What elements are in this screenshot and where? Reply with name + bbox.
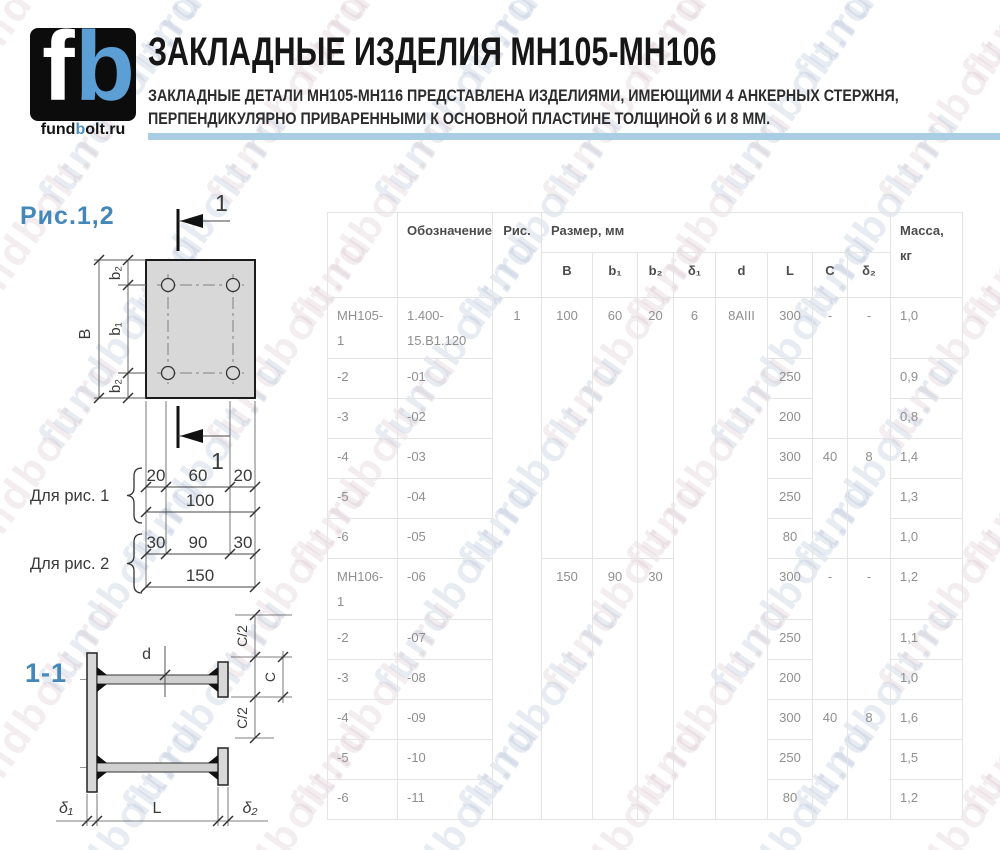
cell-designation: -05 <box>398 519 493 559</box>
table-row: МН105-1 1.400-15.В1.120 1 100 60 20 6 8А… <box>328 298 963 359</box>
width-dimensions: 20 60 20 100 30 90 30 150 Для рис. 1 Для… <box>30 401 260 593</box>
col-header-b2: b₂ <box>638 253 674 298</box>
col-header-size-group: Размер, мм <box>542 213 891 253</box>
domain-prefix: fund <box>41 121 76 138</box>
cell-b1: 60 <box>593 298 638 559</box>
cell-L: 200 <box>768 660 813 700</box>
logo-domain-label: fundbolt.ru <box>22 121 144 139</box>
cell-L: 80 <box>768 780 813 820</box>
subtitle-line-2: ПЕРПЕНДИКУЛЯРНО ПРИВАРЕННЫМИ К ОСНОВНОЙ … <box>148 107 899 130</box>
cell-mass: 1,6 <box>891 700 963 740</box>
cell-L: 300 <box>768 439 813 479</box>
dim-label-c-half-top: C/2 <box>234 625 250 647</box>
anchor-rod-top <box>97 675 218 684</box>
cell-C: - <box>813 559 848 700</box>
dim-label-c-half-bottom: C/2 <box>234 707 250 729</box>
cell-designation: -02 <box>398 399 493 439</box>
cell-name: -4 <box>328 700 398 740</box>
dim-20-left: 20 <box>147 466 166 485</box>
cell-designation: -06 <box>398 559 493 620</box>
for-fig2-label: Для рис. 2 <box>30 555 109 573</box>
dim-label-b2-top: b₂ <box>107 266 124 280</box>
cell-mass: 1,3 <box>891 479 963 519</box>
cell-delta2: - <box>848 298 891 439</box>
cell-designation: -09 <box>398 700 493 740</box>
table-row: МН106-1 -06 150 90 30 300 - - 1,2 <box>328 559 963 620</box>
brace-fig2 <box>127 534 142 593</box>
dim-20-right: 20 <box>234 466 253 485</box>
cell-mass: 1,2 <box>891 559 963 620</box>
domain-suffix: olt.ru <box>85 121 125 138</box>
rod-center-lines <box>80 680 226 768</box>
cell-L: 250 <box>768 620 813 660</box>
cell-b2: 30 <box>638 559 674 820</box>
page-title: ЗАКЛАДНЫЕ ИЗДЕЛИЯ МН105-МН106 <box>148 30 716 75</box>
cell-L: 300 <box>768 298 813 359</box>
section-cut-bottom-marker: 1 <box>178 406 230 474</box>
figure-caption: Рис.1,2 <box>20 202 115 230</box>
spec-table: Обозначение Рис. Размер, мм Масса, кг B … <box>327 212 963 820</box>
cell-designation: -04 <box>398 479 493 519</box>
dim-100: 100 <box>186 491 214 510</box>
subtitle-line-1: ЗАКЛАДНЫЕ ДЕТАЛИ МН105-МН116 ПРЕДСТАВЛЕН… <box>148 84 899 107</box>
cell-delta2: 8 <box>848 700 891 820</box>
cell-mass: 1,0 <box>891 519 963 559</box>
cell-C: 40 <box>813 700 848 820</box>
col-header-delta2: δ₂ <box>848 253 891 298</box>
cell-L: 300 <box>768 559 813 620</box>
cell-delta2: - <box>848 559 891 700</box>
cell-name: -6 <box>328 519 398 559</box>
cell-name: -3 <box>328 399 398 439</box>
logo-letter-f: f <box>42 28 75 115</box>
dim-150: 150 <box>186 566 214 585</box>
base-plate-top-view <box>146 260 255 398</box>
cut-mark-bottom: 1 <box>211 448 224 474</box>
cell-name: МН105-1 <box>328 298 398 359</box>
cell-name: -5 <box>328 740 398 780</box>
col-header-C: C <box>813 253 848 298</box>
cell-d: 8АIII <box>716 298 768 820</box>
cell-name: -5 <box>328 479 398 519</box>
cell-designation: -07 <box>398 620 493 660</box>
col-header-mass: Масса, кг <box>891 213 963 298</box>
cell-mass: 1,0 <box>891 660 963 700</box>
technical-drawing: Рис.1,2 1 <box>10 185 320 845</box>
section-view-body: d <box>80 646 228 792</box>
dim-label-delta2: δ₂ <box>243 800 258 817</box>
fundbolt-logo: f b <box>30 28 136 121</box>
dimension-C: C/2 C C/2 <box>231 610 292 743</box>
dim-30-left: 30 <box>147 533 166 552</box>
end-plate-bottom <box>218 748 228 785</box>
cell-C: - <box>813 298 848 439</box>
col-header-B: B <box>542 253 593 298</box>
dim-label-c: C <box>262 672 278 682</box>
cell-designation: -08 <box>398 660 493 700</box>
dim-label-d: d <box>142 646 151 663</box>
col-header-delta1: δ₁ <box>674 253 716 298</box>
cell-mass: 1,1 <box>891 620 963 660</box>
cell-mass: 1,4 <box>891 439 963 479</box>
cell-C: 40 <box>813 439 848 559</box>
cell-fig: 1 <box>493 298 542 820</box>
cell-delta1: 6 <box>674 298 716 820</box>
section-cut-top-marker: 1 <box>178 190 230 251</box>
cell-L: 250 <box>768 359 813 399</box>
cell-name: -3 <box>328 660 398 700</box>
dimension-L-deltas: δ₁ L δ₂ <box>56 787 268 826</box>
cell-designation: -03 <box>398 439 493 479</box>
main-plate-section <box>87 653 97 792</box>
anchor-rod-bottom <box>97 763 218 772</box>
cell-designation: 1.400-15.В1.120 <box>398 298 493 359</box>
col-header-b1: b₁ <box>593 253 638 298</box>
cell-designation: -11 <box>398 780 493 820</box>
cell-B: 100 <box>542 298 593 559</box>
brace-fig1 <box>127 468 142 523</box>
section-caption: 1-1 <box>25 658 67 688</box>
domain-b: b <box>75 121 85 138</box>
cell-name: -4 <box>328 439 398 479</box>
col-header-name <box>328 213 398 298</box>
end-plate-top <box>218 662 228 697</box>
cell-B: 150 <box>542 559 593 820</box>
cell-designation: -10 <box>398 740 493 780</box>
cell-mass: 1,2 <box>891 780 963 820</box>
cell-mass: 0,9 <box>891 359 963 399</box>
catalog-page: f b fundbolt.ru ЗАКЛАДНЫЕ ИЗДЕЛИЯ МН105-… <box>0 0 1000 850</box>
col-header-d: d <box>716 253 768 298</box>
dimension-B-b1-b2: B b₂ b₁ b₂ <box>77 255 146 403</box>
cell-name: МН106-1 <box>328 559 398 620</box>
dim-90: 90 <box>189 533 208 552</box>
for-fig1-label: Для рис. 1 <box>30 487 109 505</box>
cell-name: -2 <box>328 620 398 660</box>
logo-letter-b: b <box>75 28 135 115</box>
col-header-designation: Обозначение <box>398 213 493 298</box>
cell-mass: 0,8 <box>891 399 963 439</box>
page-subtitle: ЗАКЛАДНЫЕ ДЕТАЛИ МН105-МН116 ПРЕДСТАВЛЕН… <box>148 84 899 130</box>
accent-bar <box>148 133 1000 140</box>
cell-mass: 1,5 <box>891 740 963 780</box>
cell-designation: -01 <box>398 359 493 399</box>
cell-name: -6 <box>328 780 398 820</box>
dim-label-delta1: δ₁ <box>59 800 73 817</box>
col-header-fig: Рис. <box>493 213 542 298</box>
col-header-L: L <box>768 253 813 298</box>
cell-b2: 20 <box>638 298 674 559</box>
cell-L: 300 <box>768 700 813 740</box>
dim-label-b2-bottom: b₂ <box>107 379 124 393</box>
dim-60: 60 <box>189 466 208 485</box>
cell-L: 250 <box>768 479 813 519</box>
dim-label-B: B <box>77 329 94 340</box>
dim-label-b1: b₁ <box>107 322 124 335</box>
cell-name: -2 <box>328 359 398 399</box>
cell-b1: 90 <box>593 559 638 820</box>
cell-delta2: 8 <box>848 439 891 559</box>
spec-table-container: Обозначение Рис. Размер, мм Масса, кг B … <box>327 212 963 820</box>
cell-L: 200 <box>768 399 813 439</box>
cell-mass: 1,0 <box>891 298 963 359</box>
cell-L: 80 <box>768 519 813 559</box>
dim-label-L: L <box>153 800 162 817</box>
cut-mark-top: 1 <box>215 190 228 216</box>
cell-L: 250 <box>768 740 813 780</box>
dim-30-right: 30 <box>234 533 253 552</box>
